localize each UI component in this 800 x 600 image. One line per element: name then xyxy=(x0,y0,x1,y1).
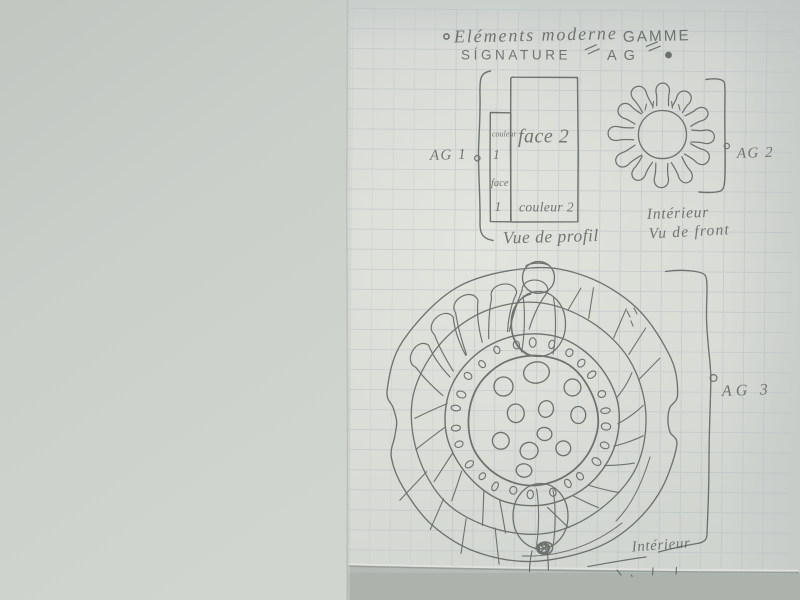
svg-text:Eléments moderne: Eléments moderne xyxy=(453,23,618,46)
svg-text:GAMME: GAMME xyxy=(623,27,691,46)
svg-text:face: face xyxy=(491,178,509,189)
svg-text:Intérieur: Intérieur xyxy=(646,204,710,223)
svg-text:couleur: couleur xyxy=(492,130,517,139)
svg-text:AG: AG xyxy=(607,48,642,64)
svg-text:AG 1: AG 1 xyxy=(429,147,468,164)
svg-text:couleur 2: couleur 2 xyxy=(519,200,574,215)
svg-text:Vue de profil: Vue de profil xyxy=(503,225,599,248)
svg-text:AG 2: AG 2 xyxy=(736,145,775,162)
svg-text:AG 3: AG 3 xyxy=(721,381,773,400)
svg-text:SÍGNATURE: SÍGNATURE xyxy=(461,48,571,63)
svg-text:face 2: face 2 xyxy=(518,126,569,148)
svg-text:1: 1 xyxy=(493,147,500,162)
svg-text:1: 1 xyxy=(495,199,502,214)
